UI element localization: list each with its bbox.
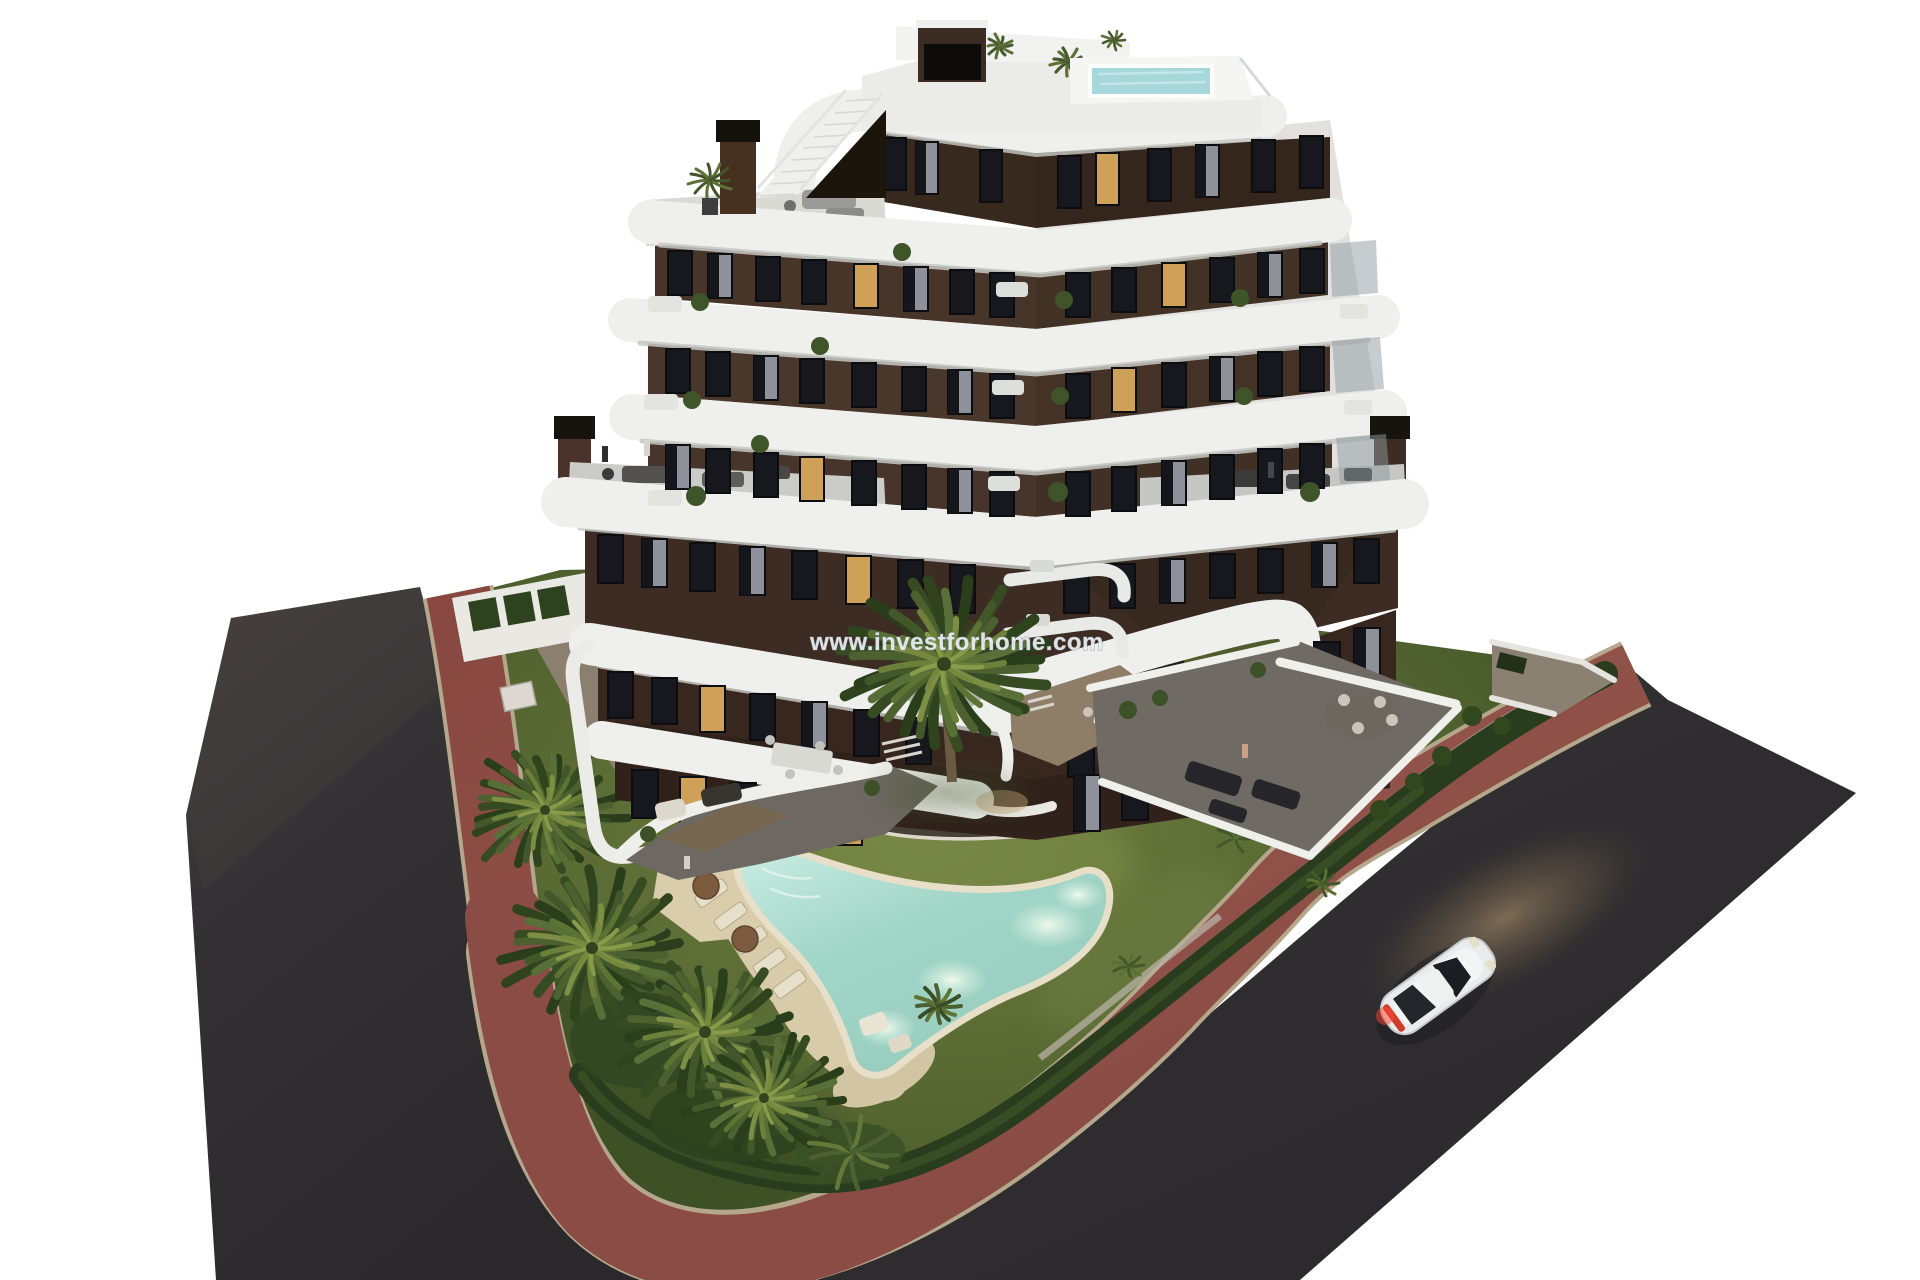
svg-text:www.investforhome.com: www.investforhome.com — [809, 629, 1104, 656]
